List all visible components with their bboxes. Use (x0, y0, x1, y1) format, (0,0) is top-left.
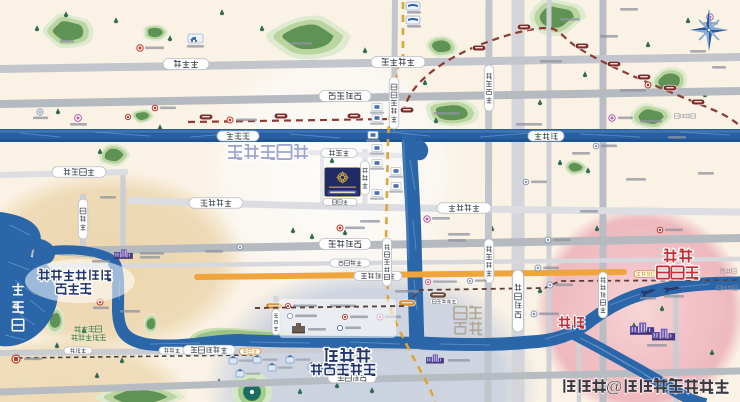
svg-text:@: @ (606, 377, 623, 396)
